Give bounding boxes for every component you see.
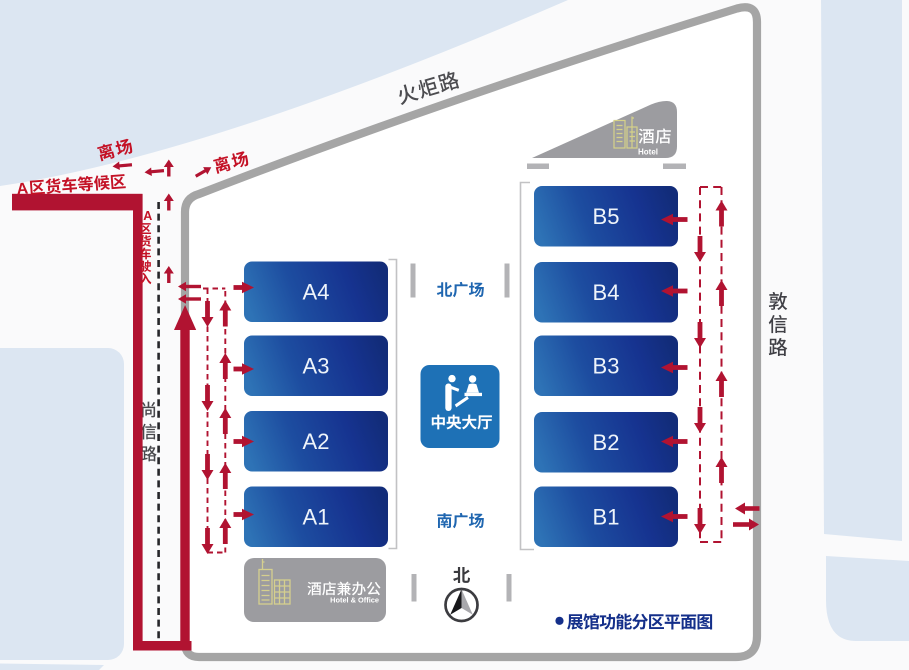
svg-text:Hotel: Hotel [638, 148, 658, 157]
svg-text:B5: B5 [593, 204, 620, 229]
svg-text:A4: A4 [303, 280, 330, 305]
svg-text:B3: B3 [593, 354, 620, 379]
svg-text:A3: A3 [303, 354, 330, 379]
svg-text:B1: B1 [593, 505, 620, 530]
svg-text:A: A [143, 209, 152, 223]
svg-text:A1: A1 [303, 505, 330, 530]
svg-text:B4: B4 [593, 280, 620, 305]
svg-text:A2: A2 [303, 429, 330, 454]
svg-text:A: A [16, 180, 29, 198]
svg-text:Hotel & Office: Hotel & Office [330, 596, 379, 605]
svg-text:B2: B2 [593, 430, 620, 455]
